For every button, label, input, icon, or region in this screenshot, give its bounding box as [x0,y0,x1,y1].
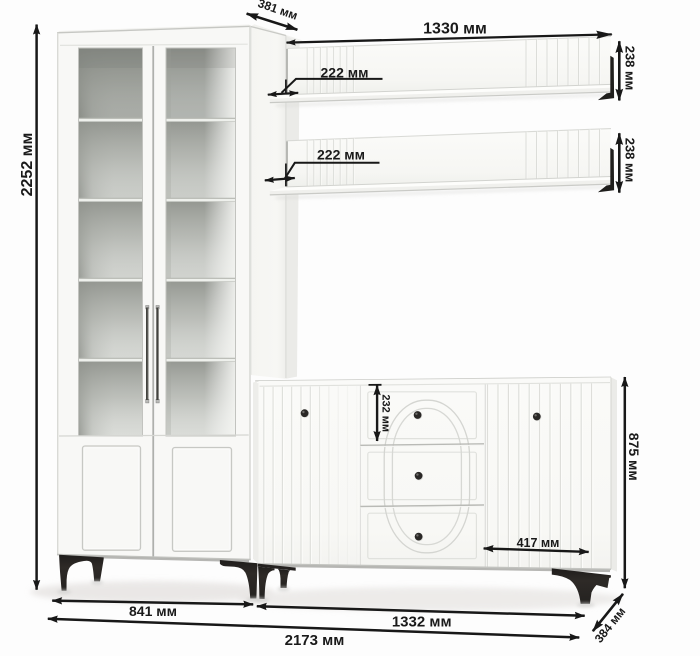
svg-text:238 мм: 238 мм [623,46,638,91]
svg-text:875 мм: 875 мм [626,433,642,481]
svg-text:232 мм: 232 мм [379,394,391,432]
svg-text:1332 мм: 1332 мм [392,613,452,630]
svg-text:1330 мм: 1330 мм [423,21,487,38]
svg-text:417 мм: 417 мм [517,536,560,550]
svg-text:222 мм: 222 мм [317,147,365,163]
svg-text:2252 мм: 2252 мм [19,133,36,197]
svg-text:238 мм: 238 мм [623,138,638,183]
svg-text:222 мм: 222 мм [321,64,369,80]
svg-text:841 мм: 841 мм [129,603,177,619]
svg-text:2173 мм: 2173 мм [285,632,345,649]
